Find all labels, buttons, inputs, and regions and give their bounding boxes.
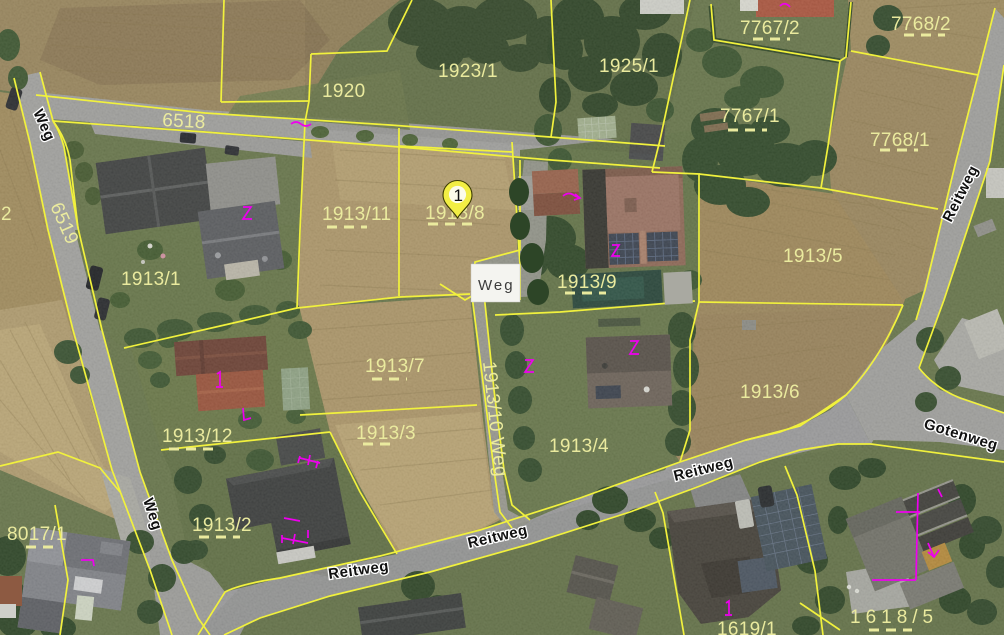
svg-text:7768/1: 7768/1 (870, 130, 930, 151)
svg-text:1913/11: 1913/11 (322, 204, 391, 225)
svg-text:1913/9: 1913/9 (557, 272, 617, 293)
svg-text:8017/1: 8017/1 (7, 524, 67, 545)
svg-text:2: 2 (1, 204, 12, 225)
svg-text:1913/5: 1913/5 (783, 246, 843, 267)
svg-text:1913/3: 1913/3 (356, 423, 416, 444)
svg-text:1913/2: 1913/2 (192, 515, 252, 536)
svg-text:1913/4: 1913/4 (549, 436, 609, 457)
svg-text:1618/5: 1618/5 (850, 607, 938, 628)
svg-text:7767/2: 7767/2 (740, 18, 800, 39)
svg-text:6518: 6518 (162, 110, 207, 133)
svg-text:1913/6: 1913/6 (740, 382, 800, 403)
svg-text:7768/2: 7768/2 (891, 14, 951, 35)
svg-text:1913/1: 1913/1 (121, 269, 181, 290)
svg-text:Weg: Weg (478, 277, 515, 294)
svg-text:1925/1: 1925/1 (599, 56, 659, 77)
svg-text:1913/7: 1913/7 (365, 356, 425, 377)
svg-text:1619/1: 1619/1 (717, 619, 777, 635)
svg-text:7767/1: 7767/1 (720, 106, 780, 127)
svg-text:1923/1: 1923/1 (438, 61, 498, 82)
svg-text:1913/12: 1913/12 (162, 426, 233, 447)
svg-text:1920: 1920 (322, 81, 365, 102)
svg-text:1: 1 (454, 186, 463, 205)
